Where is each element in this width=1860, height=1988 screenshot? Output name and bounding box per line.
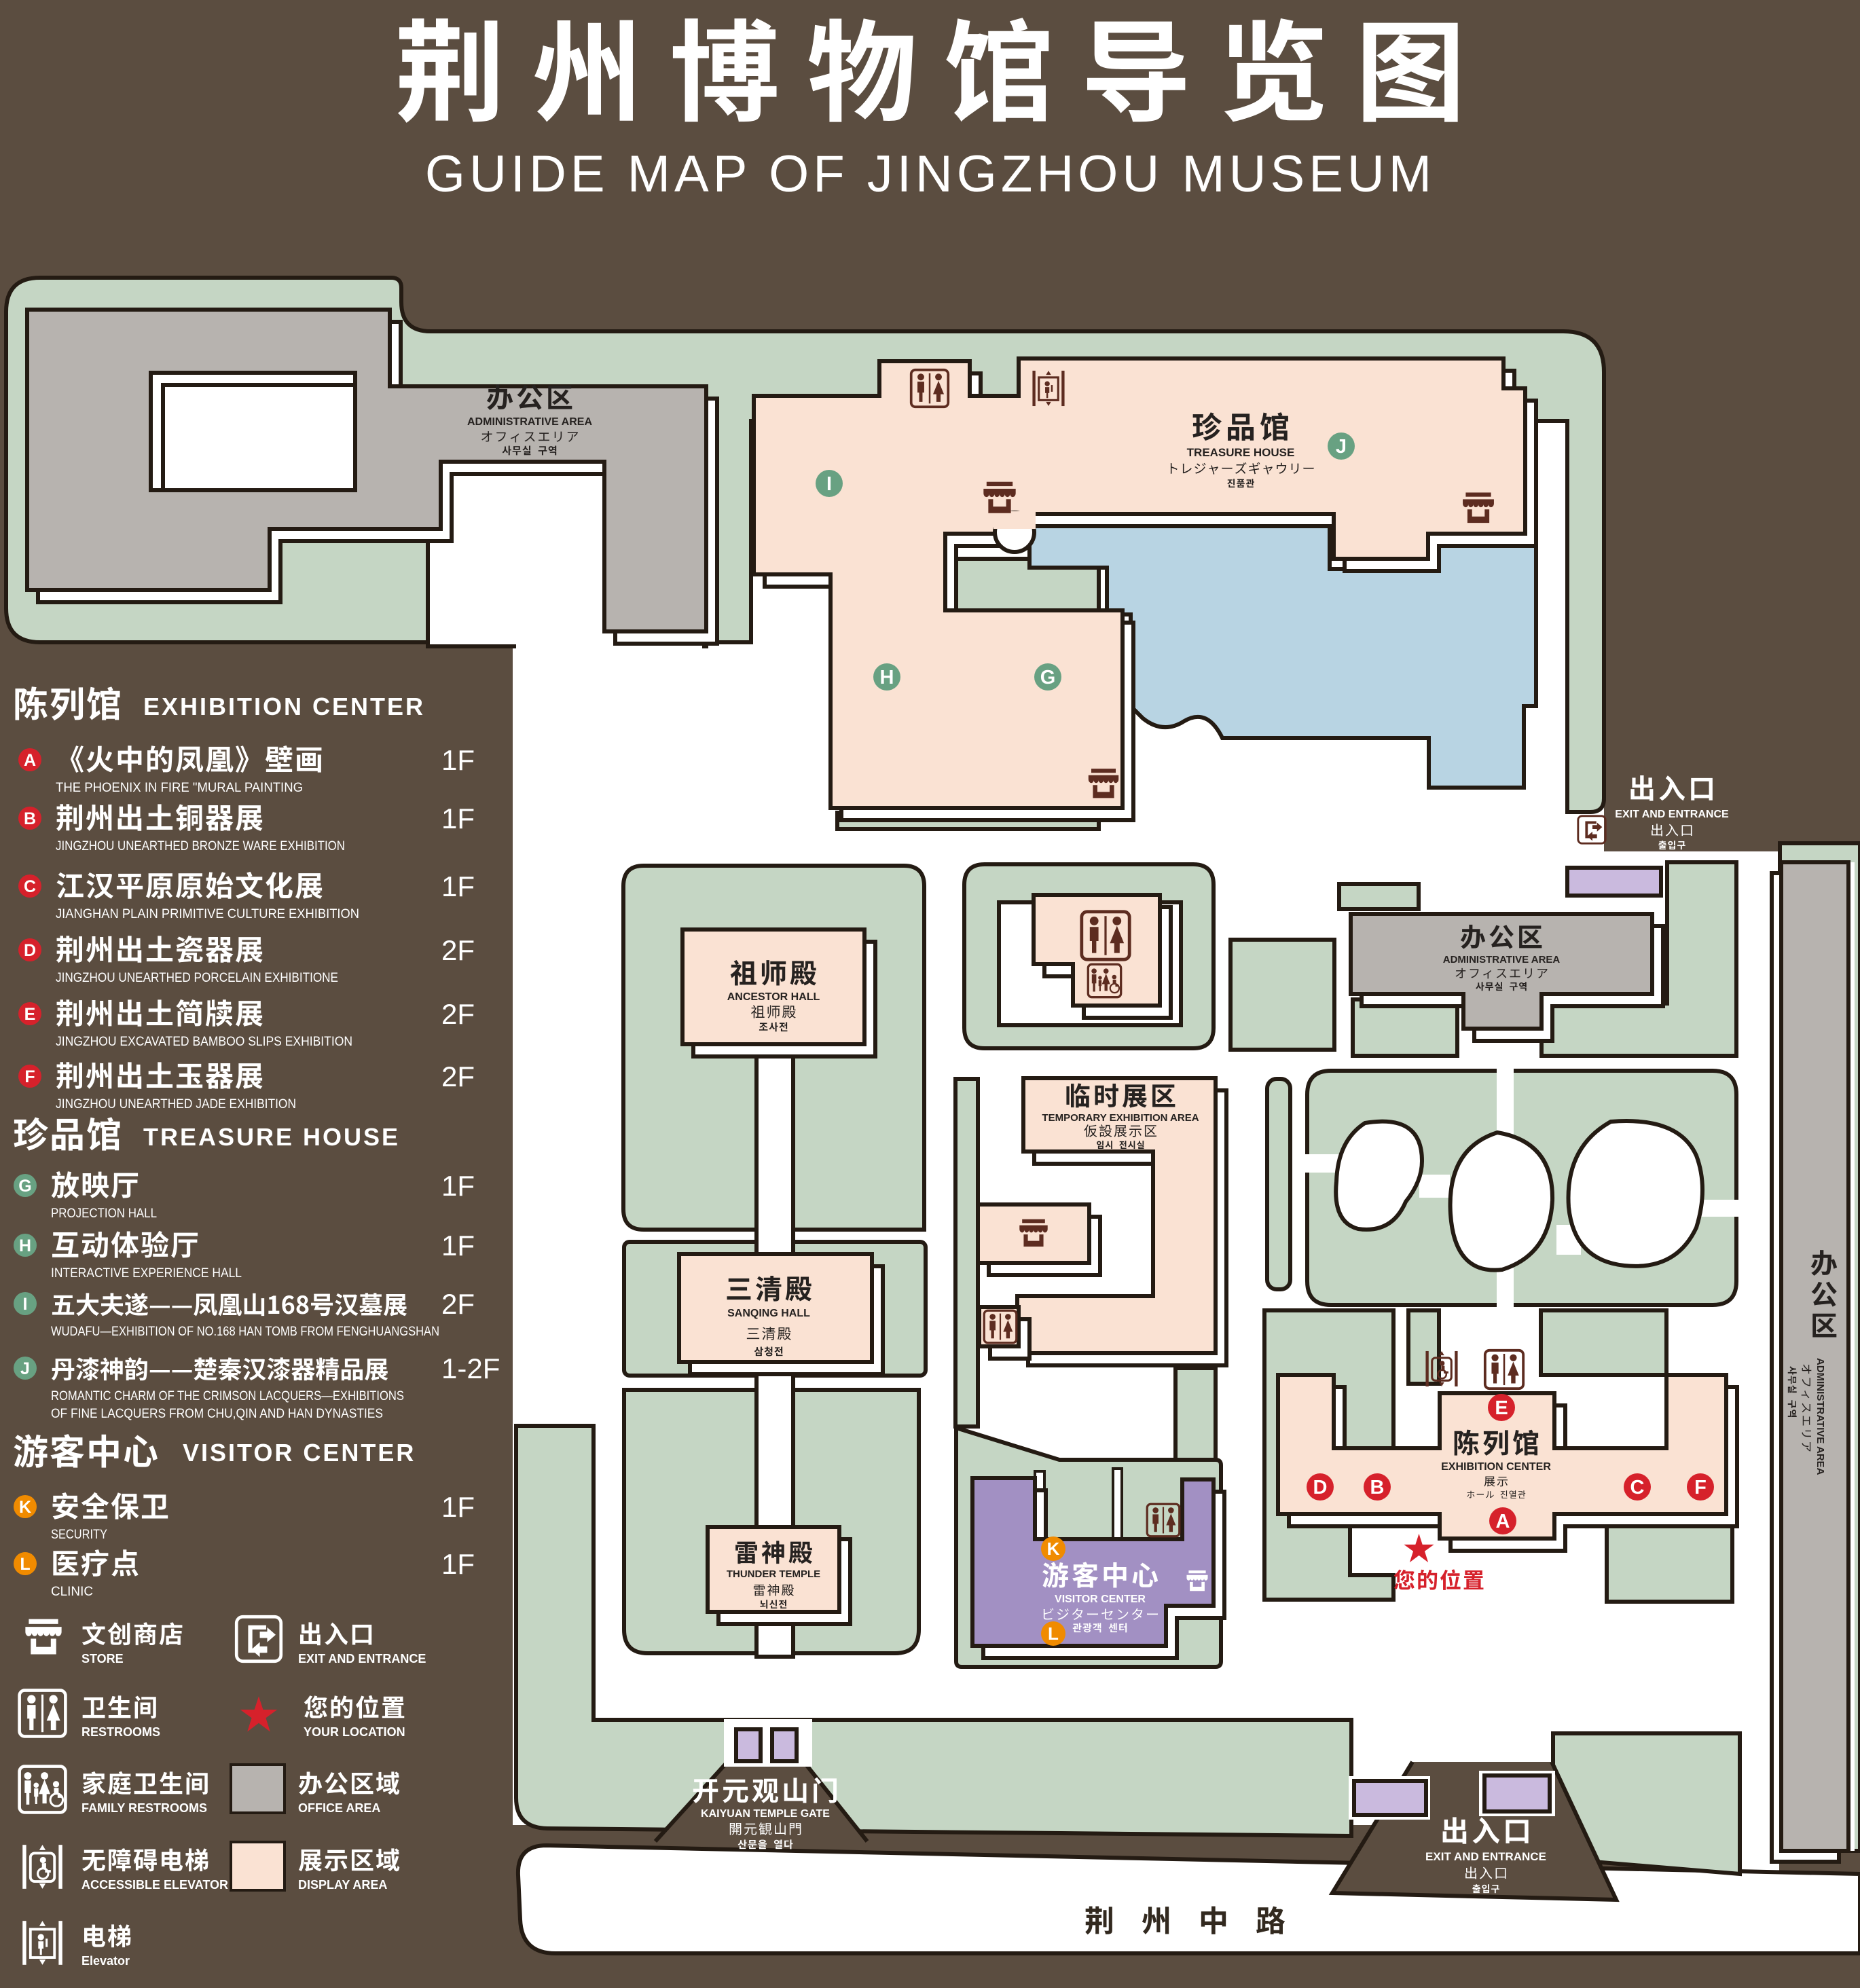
svg-text:2F: 2F: [441, 934, 475, 966]
svg-text:2F: 2F: [441, 1061, 475, 1092]
svg-text:ADMINISTRATIVE AREA: ADMINISTRATIVE AREA: [1443, 954, 1561, 965]
svg-text:1F: 1F: [441, 803, 475, 834]
svg-text:L: L: [1048, 1623, 1059, 1644]
svg-text:TREASURE HOUSE: TREASURE HOUSE: [143, 1123, 400, 1151]
svg-text:2F: 2F: [441, 1288, 475, 1320]
svg-text:2F: 2F: [441, 998, 475, 1030]
svg-text:OFFICE AREA: OFFICE AREA: [298, 1801, 380, 1815]
svg-text:TREASURE HOUSE: TREASURE HOUSE: [1187, 446, 1295, 459]
svg-text:ACCESSIBLE ELEVATOR: ACCESSIBLE ELEVATOR: [81, 1878, 228, 1892]
svg-text:K: K: [1047, 1539, 1060, 1559]
svg-text:FAMILY RESTROOMS: FAMILY RESTROOMS: [81, 1801, 207, 1815]
svg-text:EXHIBITION CENTER: EXHIBITION CENTER: [143, 693, 425, 720]
svg-text:1F: 1F: [441, 1491, 475, 1523]
svg-text:A: A: [1496, 1511, 1510, 1532]
svg-text:ADMINISTRATIVE AREA: ADMINISTRATIVE AREA: [467, 416, 592, 428]
svg-text:VISITOR CENTER: VISITOR CENTER: [183, 1439, 416, 1467]
svg-text:1F: 1F: [441, 1230, 475, 1262]
svg-text:Elevator: Elevator: [81, 1954, 130, 1968]
svg-text:STORE: STORE: [81, 1652, 124, 1665]
svg-text:H: H: [880, 667, 894, 688]
svg-text:E: E: [1495, 1397, 1508, 1419]
svg-text:GUIDE MAP OF JINGZHOU MUSEUM: GUIDE MAP OF JINGZHOU MUSEUM: [425, 145, 1436, 203]
svg-text:1-2F: 1-2F: [441, 1352, 500, 1384]
svg-text:CLINIC: CLINIC: [51, 1585, 93, 1599]
svg-text:C: C: [24, 877, 36, 896]
svg-text:EXIT AND ENTRANCE: EXIT AND ENTRANCE: [1425, 1850, 1546, 1863]
svg-text:OF FINE LACQUERS FROM CHU,QIN: OF FINE LACQUERS FROM CHU,QIN AND HAN DY…: [51, 1407, 383, 1421]
svg-text:EXIT AND ENTRANCE: EXIT AND ENTRANCE: [1615, 809, 1729, 820]
svg-text:VISITOR CENTER: VISITOR CENTER: [1055, 1594, 1146, 1605]
svg-text:I: I: [826, 473, 832, 495]
svg-text:PROJECTION HALL: PROJECTION HALL: [51, 1207, 157, 1221]
svg-text:C: C: [1630, 1477, 1645, 1498]
svg-text:JINGZHOU UNEARTHED BRONZE WARE: JINGZHOU UNEARTHED BRONZE WARE EXHIBITIO…: [56, 839, 345, 853]
svg-text:1F: 1F: [441, 870, 475, 902]
svg-text:EXIT AND ENTRANCE: EXIT AND ENTRANCE: [298, 1652, 426, 1665]
svg-text:G: G: [1040, 667, 1056, 688]
svg-text:KAIYUAN TEMPLE GATE: KAIYUAN TEMPLE GATE: [701, 1808, 830, 1820]
svg-text:B: B: [1370, 1477, 1385, 1498]
svg-text:J: J: [20, 1359, 30, 1378]
svg-text:YOUR LOCATION: YOUR LOCATION: [304, 1725, 405, 1739]
svg-text:D: D: [1313, 1477, 1328, 1498]
svg-text:SECURITY: SECURITY: [51, 1528, 107, 1542]
svg-text:RESTROOMS: RESTROOMS: [81, 1725, 160, 1739]
svg-text:JINGZHOU EXCAVATED BAMBOO SLIP: JINGZHOU EXCAVATED BAMBOO SLIPS EXHIBITI…: [56, 1035, 352, 1049]
svg-text:ROMANTIC CHARM OF THE CRIMSON: ROMANTIC CHARM OF THE CRIMSON LACQUERS—E…: [51, 1389, 404, 1403]
svg-text:JINGZHOU UNEARTHED JADE EXHIBI: JINGZHOU UNEARTHED JADE EXHIBITION: [56, 1097, 296, 1111]
svg-text:F: F: [1694, 1477, 1707, 1498]
svg-text:EXHIBITION CENTER: EXHIBITION CENTER: [1441, 1461, 1551, 1473]
svg-text:ADMINISTRATIVE AREA: ADMINISTRATIVE AREA: [1815, 1358, 1826, 1475]
svg-text:E: E: [24, 1005, 36, 1024]
svg-text:THUNDER TEMPLE: THUNDER TEMPLE: [727, 1568, 820, 1580]
svg-text:G: G: [18, 1177, 31, 1196]
svg-text:I: I: [23, 1295, 28, 1314]
svg-text:H: H: [19, 1236, 31, 1255]
svg-text:1F: 1F: [441, 744, 475, 776]
svg-text:F: F: [24, 1067, 35, 1086]
svg-text:A: A: [24, 751, 36, 770]
svg-text:DISPLAY AREA: DISPLAY AREA: [298, 1878, 387, 1892]
svg-text:JIANGHAN PLAIN PRIMITIVE CULTU: JIANGHAN PLAIN PRIMITIVE CULTURE EXHIBIT…: [56, 907, 359, 921]
svg-text:JINGZHOU UNEARTHED PORCELAIN E: JINGZHOU UNEARTHED PORCELAIN EXHIBITIONE: [56, 971, 338, 985]
svg-text:K: K: [19, 1498, 31, 1517]
svg-text:B: B: [24, 809, 36, 828]
svg-text:TEMPORARY EXHIBITION AREA: TEMPORARY EXHIBITION AREA: [1042, 1112, 1199, 1124]
svg-text:1F: 1F: [441, 1170, 475, 1202]
svg-text:WUDAFU—EXHIBITION OF NO.168 HA: WUDAFU—EXHIBITION OF NO.168 HAN TOMB FRO…: [51, 1325, 439, 1339]
svg-text:ANCESTOR HALL: ANCESTOR HALL: [727, 991, 820, 1003]
svg-text:J: J: [1336, 436, 1347, 458]
svg-text:SANQING HALL: SANQING HALL: [727, 1308, 810, 1319]
svg-text:1F: 1F: [441, 1548, 475, 1580]
svg-text:THE PHOENIX IN FIRE "MURAL PAI: THE PHOENIX IN FIRE "MURAL PAINTING: [56, 781, 303, 795]
svg-text:L: L: [20, 1555, 30, 1574]
svg-text:INTERACTIVE EXPERIENCE HALL: INTERACTIVE EXPERIENCE HALL: [51, 1266, 242, 1281]
svg-text:D: D: [24, 941, 36, 960]
